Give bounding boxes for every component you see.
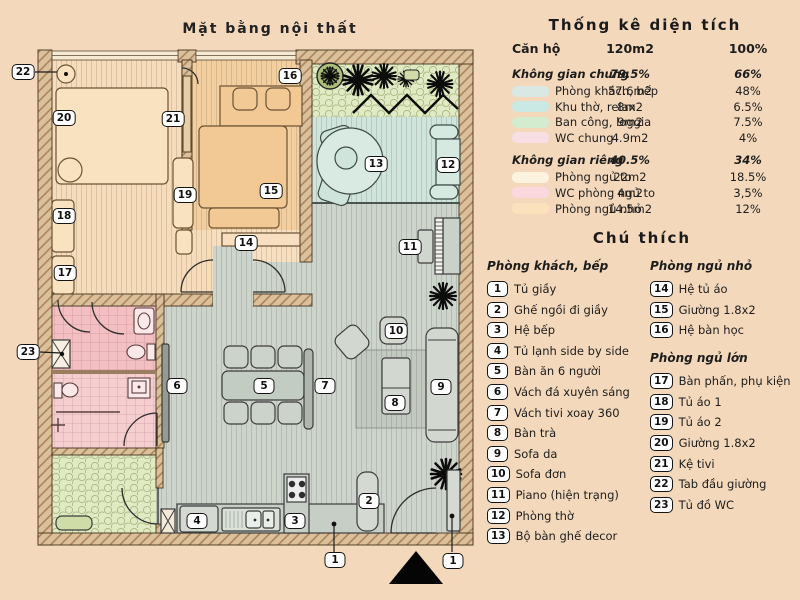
stats-header-label: Căn hộ	[512, 41, 560, 56]
legend-item-number: 17	[650, 373, 673, 389]
legend-item: 11Piano (hiện trạng)	[487, 487, 650, 503]
stats-row-percent: 7.5%	[713, 115, 783, 129]
legend-section-header: Phòng ngủ nhỏ	[650, 259, 797, 273]
legend-item-label: Bàn ăn 6 người	[514, 364, 601, 378]
stats-row-area: 57.6m2	[595, 84, 665, 98]
plan-marker-14: 14	[235, 235, 258, 251]
stats-row: Khu thờ, relax8m26.5%	[495, 100, 795, 116]
legend-item-number: 18	[650, 394, 673, 410]
stats-row-area: 4.9m2	[595, 131, 665, 145]
stats-row-area: 14.5m2	[595, 202, 665, 216]
stats-row-area: 40.5%	[595, 153, 665, 167]
legend-item: 9Sofa da	[487, 446, 650, 462]
legend-item: 10Sofa đơn	[487, 466, 650, 482]
legend-item: 22Tab đầu giường	[650, 476, 797, 492]
legend-item-number: 2	[487, 302, 508, 318]
plan-marker-1: 1	[325, 552, 346, 568]
legend-item: 18Tủ áo 1	[650, 394, 797, 410]
stats-rows: Không gian chung79.5%66%Phòng khách, bếp…	[495, 67, 795, 217]
area-color-swatch	[512, 101, 549, 112]
plan-marker-9: 9	[431, 379, 452, 395]
legend-item: 4Tủ lạnh side by side	[487, 343, 650, 359]
legend-item-number: 19	[650, 414, 673, 430]
stats-row-percent: 6.5%	[713, 100, 783, 114]
legend-item-label: Ghế ngồi đi giầy	[514, 303, 608, 317]
legend-item-number: 16	[650, 322, 673, 338]
plan-marker-10: 10	[385, 323, 408, 339]
legend-item: 16Hệ bàn học	[650, 322, 797, 338]
legend-item-label: Tủ áo 1	[679, 395, 722, 409]
legend-item-number: 23	[650, 497, 673, 513]
legend-item-number: 7	[487, 405, 508, 421]
legend-item-label: Vách đá xuyên sáng	[514, 385, 630, 399]
plan-marker-2: 2	[359, 493, 380, 509]
plan-marker-20: 20	[53, 110, 76, 126]
plan-marker-5: 5	[254, 378, 275, 394]
legend-col-2: Phòng ngủ nhỏ14Hệ tủ áo15Giường 1.8x216H…	[650, 257, 797, 549]
stats-row: WC chung4.9m24%	[495, 131, 795, 147]
plan-marker-3: 3	[285, 513, 306, 529]
legend-item: 1Tủ giầy	[487, 281, 650, 297]
stats-row-percent: 3,5%	[713, 186, 783, 200]
legend-item-label: Giường 1.8x2	[679, 436, 756, 450]
legend-item-label: Vách tivi xoay 360	[514, 406, 620, 420]
floor-plan-drawing	[30, 40, 490, 595]
legend-item: 13Bộ bàn ghế decor	[487, 528, 650, 544]
legend-item-number: 10	[487, 466, 510, 482]
legend-item-label: Tủ giầy	[514, 282, 556, 296]
legend-item-number: 4	[487, 343, 508, 359]
legend-item-number: 14	[650, 281, 673, 297]
legend-item-number: 12	[487, 508, 510, 524]
stats-row-percent: 18.5%	[713, 170, 783, 184]
plan-marker-6: 6	[167, 378, 188, 394]
legend-item-label: Bàn phấn, phụ kiện	[679, 374, 791, 388]
legend-item-number: 1	[487, 281, 508, 297]
stats-row: Ban công, loggia9m27.5%	[495, 115, 795, 131]
legend-item: 19Tủ áo 2	[650, 414, 797, 430]
legend-item-label: Sofa đơn	[516, 467, 567, 481]
area-color-swatch	[512, 86, 549, 97]
legend-item-label: Kệ tivi	[679, 457, 715, 471]
legend-item-number: 15	[650, 302, 673, 318]
legend-item-label: Tủ đồ WC	[679, 498, 734, 512]
legend-item: 7Vách tivi xoay 360	[487, 405, 650, 421]
legend-item: 20Giường 1.8x2	[650, 435, 797, 451]
legend-item: 17Bàn phấn, phụ kiện	[650, 373, 797, 389]
statistics-title: Thống kê diện tích	[495, 16, 795, 34]
legend-item-label: Phòng thờ	[516, 509, 574, 523]
stats-row-percent: 12%	[713, 202, 783, 216]
stats-row-area: 79.5%	[595, 67, 665, 81]
plan-marker-19: 19	[174, 187, 197, 203]
legend-item: 3Hệ bếp	[487, 322, 650, 338]
area-color-swatch	[512, 203, 549, 214]
legend-item: 8Bàn trà	[487, 425, 650, 441]
plan-marker-7: 7	[315, 378, 336, 394]
plan-marker-1: 1	[443, 553, 464, 569]
legend-item-label: Sofa da	[514, 447, 557, 461]
legend-title: Chú thích	[487, 229, 797, 247]
legend-item: 2Ghế ngồi đi giầy	[487, 302, 650, 318]
stats-row: Phòng khách, bếp57.6m248%	[495, 84, 795, 100]
legend-item-label: Tủ lạnh side by side	[514, 344, 629, 358]
legend-item: 15Giường 1.8x2	[650, 302, 797, 318]
entrance-arrow-icon	[389, 551, 443, 584]
stats-row-percent: 34%	[713, 153, 783, 167]
legend-panel: Chú thích Phòng khách, bếp1Tủ giầy2Ghế n…	[487, 229, 797, 549]
legend-item-number: 5	[487, 363, 508, 379]
plan-marker-23: 23	[17, 344, 40, 360]
legend-item-number: 11	[487, 487, 510, 503]
area-color-swatch	[512, 187, 549, 198]
plan-marker-18: 18	[53, 208, 76, 224]
legend-item-number: 8	[487, 425, 508, 441]
stats-row-area: 9m2	[595, 115, 665, 129]
legend-item-label: Bộ bàn ghế decor	[516, 529, 618, 543]
legend-item-label: Hệ bàn học	[679, 323, 744, 337]
legend-item-label: Tủ áo 2	[679, 415, 722, 429]
stats-row-area: 22m2	[595, 170, 665, 184]
legend-section-header: Phòng khách, bếp	[487, 259, 650, 273]
legend-item-label: Tab đầu giường	[679, 477, 767, 491]
legend-item: 12Phòng thờ	[487, 508, 650, 524]
stats-row: Phòng ngủ nhỏ14.5m212%	[495, 202, 795, 218]
legend-item-label: Piano (hiện trạng)	[516, 488, 619, 502]
stats-row: Không gian riêng40.5%34%	[495, 153, 795, 170]
plan-marker-17: 17	[54, 265, 77, 281]
stats-row-percent: 4%	[713, 131, 783, 145]
plan-marker-16: 16	[279, 68, 302, 84]
legend-item-number: 21	[650, 456, 673, 472]
stats-row: WC phòng ngủ to4m23,5%	[495, 186, 795, 202]
legend-item: 21Kệ tivi	[650, 456, 797, 472]
stats-row-area: 4m2	[595, 186, 665, 200]
stats-row-area: 8m2	[595, 100, 665, 114]
legend-item-label: Hệ tủ áo	[679, 282, 728, 296]
plan-marker-11: 11	[399, 239, 422, 255]
page: { "plan": { "title": "Mặt bằng nội thất"…	[0, 0, 800, 600]
plan-marker-4: 4	[187, 513, 208, 529]
plan-marker-12: 12	[437, 157, 460, 173]
area-color-swatch	[512, 132, 549, 143]
plan-marker-8: 8	[385, 395, 406, 411]
stats-header-percent: 100%	[713, 41, 783, 56]
legend-item: 6Vách đá xuyên sáng	[487, 384, 650, 400]
legend-item-number: 3	[487, 322, 508, 338]
legend-item-label: Hệ bếp	[514, 323, 555, 337]
plan-marker-22: 22	[12, 64, 35, 80]
area-color-swatch	[512, 117, 549, 128]
stats-header-row: Căn hộ 120m2 100%	[495, 41, 795, 60]
legend-col-1: Phòng khách, bếp1Tủ giầy2Ghế ngồi đi giầ…	[487, 257, 650, 549]
legend-section-header: Phòng ngủ lớn	[650, 351, 797, 365]
legend-item: 14Hệ tủ áo	[650, 281, 797, 297]
legend-item: 5Bàn ăn 6 người	[487, 363, 650, 379]
plan-marker-21: 21	[162, 111, 185, 127]
stats-row-percent: 48%	[713, 84, 783, 98]
stats-header-area: 120m2	[595, 41, 665, 56]
area-statistics-panel: Thống kê diện tích Căn hộ 120m2 100% Khô…	[495, 16, 795, 217]
legend-item-label: Bàn trà	[514, 426, 556, 440]
plan-marker-13: 13	[365, 156, 388, 172]
legend-item-number: 13	[487, 528, 510, 544]
legend-item-number: 9	[487, 446, 508, 462]
stats-row: Không gian chung79.5%66%	[495, 67, 795, 84]
legend-item-number: 6	[487, 384, 508, 400]
area-color-swatch	[512, 172, 549, 183]
legend-item-label: Giường 1.8x2	[679, 303, 756, 317]
plan-marker-15: 15	[260, 183, 283, 199]
legend-item: 23Tủ đồ WC	[650, 497, 797, 513]
stats-row-percent: 66%	[713, 67, 783, 81]
legend-item-number: 22	[650, 476, 673, 492]
legend-item-number: 20	[650, 435, 673, 451]
stats-row: Phòng ngủ to22m218.5%	[495, 170, 795, 186]
